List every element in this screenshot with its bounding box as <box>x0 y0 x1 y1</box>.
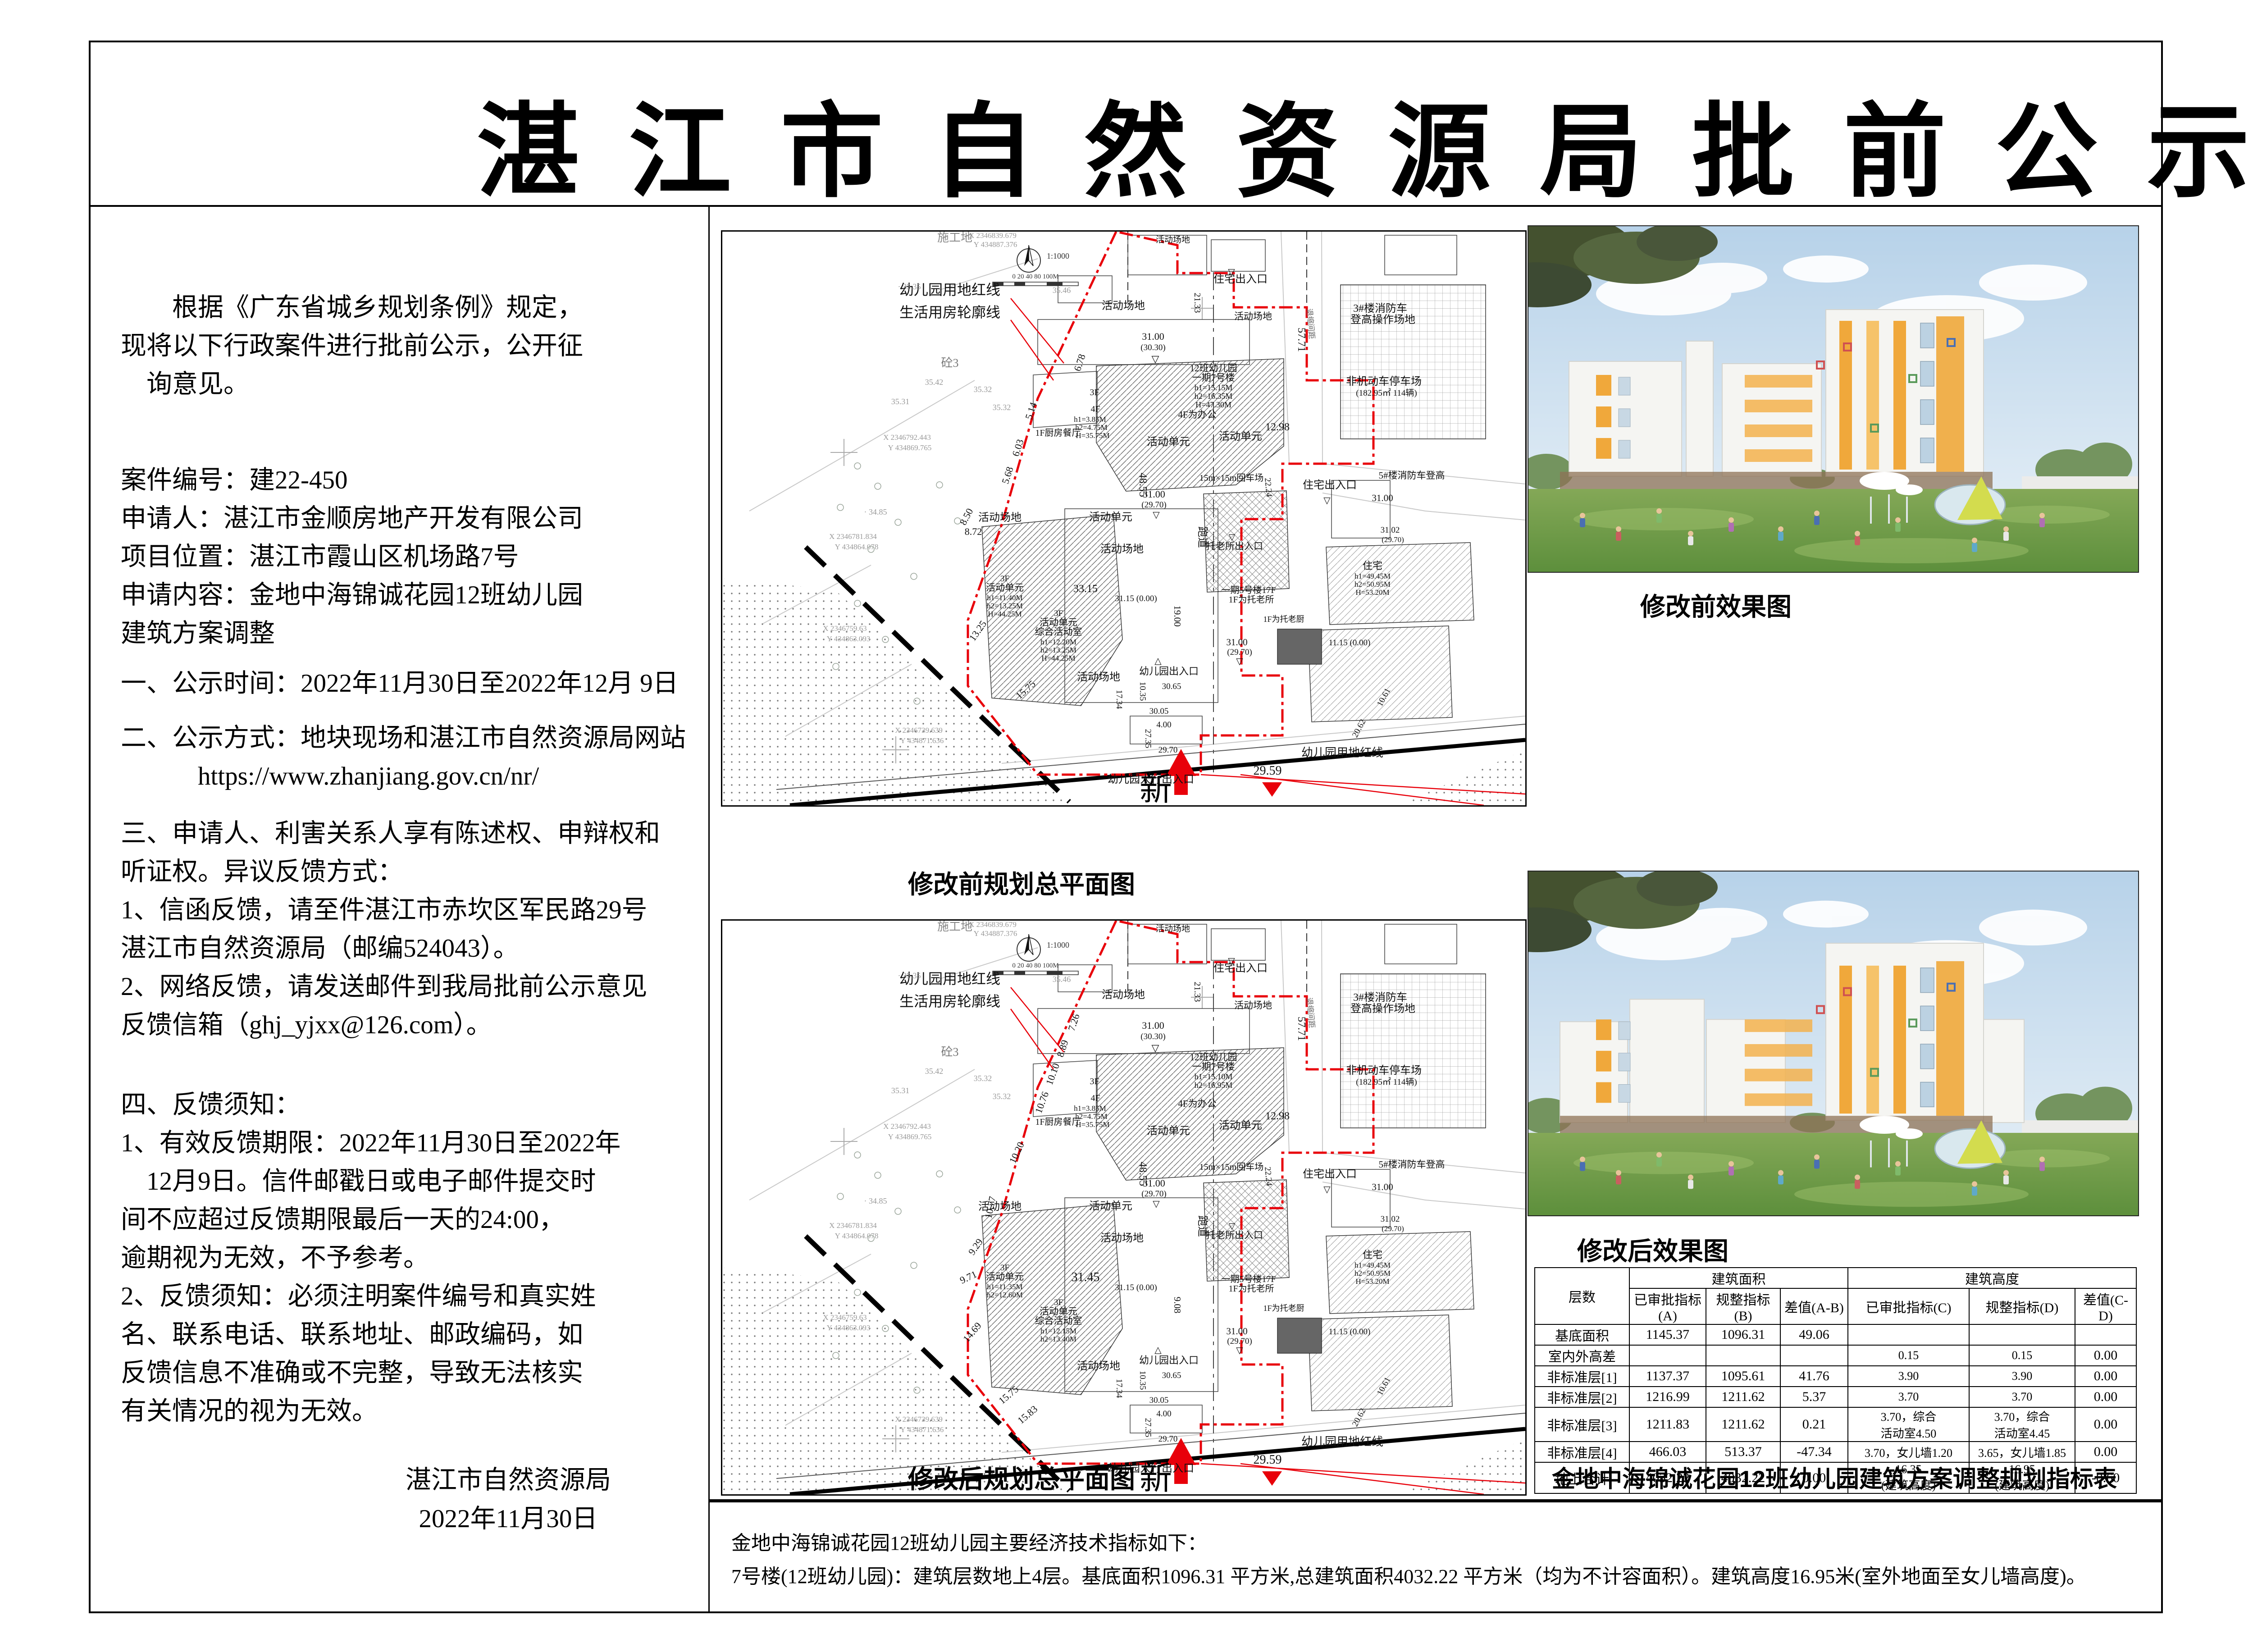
plan-label: 4.00 <box>1156 720 1171 730</box>
plan-label: 新 <box>1140 771 1172 805</box>
plan-label: 35.32 <box>974 1074 992 1083</box>
plan-label: 1F为托老所 <box>1228 594 1274 605</box>
table-corner-header: 层数 <box>1535 1268 1629 1324</box>
left-text-line: 逾期视为无效，不予参考。 <box>121 1239 707 1277</box>
table-subheader: 差值(C-D) <box>2075 1288 2136 1324</box>
plan-label: 综合活动室 <box>1035 1315 1082 1326</box>
table-cell: 0.00 <box>2075 1366 2136 1387</box>
plan-label: ▽ <box>1153 1199 1160 1209</box>
table-cell: 地上合计 <box>1535 1462 1629 1493</box>
plan-label: 27.35 <box>1143 729 1153 748</box>
plan-label: 1:1000 <box>1047 940 1069 949</box>
plan-label: 住宅 <box>1363 1249 1382 1260</box>
plan-label: h2=13.25M <box>987 602 1023 610</box>
plan-label: 4F为办公 <box>1178 409 1216 420</box>
table-cell: 1211.62 <box>1706 1407 1780 1442</box>
plan-label: 幼儿园出入口 <box>1139 666 1199 677</box>
plan-label: 5#楼消防车登高 <box>1379 1159 1445 1170</box>
plan-label: 11.15 (0.00) <box>1329 638 1371 648</box>
plan-label: 35.46 <box>1053 975 1071 984</box>
plan-label: (29.70) <box>1382 535 1404 544</box>
plan-label: X 2346839.679 <box>969 232 1017 240</box>
plan-label: 一期7号楼 <box>1192 1061 1235 1072</box>
signature-date: 2022年11月30日 <box>387 1500 630 1538</box>
paragraph: 根据《广东省城乡规划条例》规定，现将以下行政案件进行批前公示，公开征 询意见。 <box>121 288 707 403</box>
plan-label: 30.05 <box>1149 1396 1169 1405</box>
plan-label: 3#楼消防车 <box>1353 991 1407 1004</box>
caption-plan-before: 修改前规划总平面图 <box>908 864 1135 901</box>
plan-label: H=35.75M <box>1076 1120 1109 1129</box>
plan-label: 31.00 <box>1372 493 1393 503</box>
plan-label: (182.95㎡ 114辆) <box>1356 1077 1417 1087</box>
plan-label: 活动场地 <box>1102 989 1145 1001</box>
plan-label: 一期5号楼17F <box>1221 585 1276 595</box>
table-group-area: 建筑面积 <box>1629 1268 1848 1288</box>
plan-label: 4.00 <box>1156 1409 1171 1419</box>
plan-label: 29.59 <box>1254 764 1282 778</box>
plan-label: 31.00 <box>1143 488 1165 500</box>
indicator-table: 层数 建筑面积 建筑高度 已审批指标(A) 规整指标(B) 差值(A-B) 已审… <box>1534 1267 2137 1494</box>
plan-label: h2=13.40M <box>1040 1335 1076 1343</box>
plan-label: Y 434887.376 <box>974 240 1017 249</box>
paragraph: 案件编号：建22-450申请人：湛江市金顺房地产开发有限公司项目位置：湛江市霞山… <box>121 461 707 653</box>
table-subheader: 差值(A-B) <box>1780 1288 1848 1324</box>
table-row: 室内外高差0.150.150.00 <box>1535 1345 2136 1366</box>
plan-label: 27.35 <box>1143 1418 1153 1438</box>
plan-label: 登高操作场地 <box>1350 1003 1415 1015</box>
plan-label: 30.05 <box>1149 707 1169 716</box>
render-after-scene <box>1528 872 2138 1215</box>
building-base <box>1560 472 1993 490</box>
plan-label: (29.70) <box>1227 648 1252 657</box>
plan-label: ▽ <box>1152 1042 1159 1054</box>
left-text-line: 申请人：湛江市金顺房地产开发有限公司 <box>121 499 707 538</box>
paragraph: 二、公示方式：地块现场和湛江市自然资源局网站 https://www.zhanj… <box>121 719 707 795</box>
plan-label: 8.72 <box>965 526 982 537</box>
render-before-image <box>1528 225 2139 573</box>
plan-label: h2=50.95M <box>1355 580 1391 589</box>
plan-label: 幼儿园用地红线 <box>1301 1435 1383 1448</box>
plan-label: H=53.20M <box>1355 1277 1389 1286</box>
table-row: 非标准层[3]1211.831211.620.213.70，综合 活动室4.50… <box>1535 1407 2136 1442</box>
plan-label: 1F厨房餐厅 <box>1035 428 1081 438</box>
table-cell <box>1629 1345 1706 1366</box>
plan-label: 综合活动室 <box>1035 626 1082 637</box>
plan-label: h2=16.35M <box>1195 392 1233 401</box>
table-row: 地上合计4032.224032.220.0016.35 (建筑高度)16.95 … <box>1535 1462 2136 1493</box>
plan-label: 17.34 <box>1114 1379 1124 1398</box>
table-cell: 0.00 <box>2075 1345 2136 1366</box>
plan-label: X 2346792.443 <box>883 1122 931 1131</box>
table-cell: 41.76 <box>1780 1366 1848 1387</box>
plan-label: X 2346781.834 <box>829 532 877 541</box>
plan-label: 施工地 <box>937 232 972 244</box>
table-row: 基底面积1145.371096.3149.06 <box>1535 1324 2136 1345</box>
table-cell: 3.70，综合 活动室4.50 <box>1848 1407 1969 1442</box>
plan-label: 31.00 <box>1142 1020 1164 1031</box>
plan-label: 托老所出入口 <box>1206 1230 1263 1241</box>
table-cell: 3.90 <box>1848 1366 1969 1387</box>
plan-label: 31.00 <box>1142 331 1164 342</box>
plan-label: Y 434863.093 <box>827 634 871 643</box>
plan-label: X 2346759.63 <box>823 1313 867 1322</box>
signature-block: 湛江市自然资源局 2022年11月30日 <box>387 1461 630 1538</box>
site-plan-after: 施工地X 2346839.679Y 434887.3761:10000 20 4… <box>722 921 1525 1494</box>
plan-label: h1=3.85M <box>1074 1104 1106 1113</box>
plan-label: 活动单元 <box>1147 1125 1190 1137</box>
table-cell: 3.70，女儿墙1.20 <box>1848 1442 1969 1462</box>
table-cell: 0.00 <box>2075 1387 2136 1407</box>
table-cell <box>1780 1345 1848 1366</box>
building-base <box>1560 1116 1993 1134</box>
plan-label: Y 434864.078 <box>835 1232 879 1240</box>
plan-label: 3F <box>1090 1077 1099 1086</box>
plan-label: 非机动车停车场 <box>1346 375 1422 388</box>
plan-label: 4F <box>1090 404 1100 414</box>
caption-render-before: 修改前效果图 <box>1640 587 1792 623</box>
left-text-line: 有关情况的视为无效。 <box>121 1392 707 1430</box>
left-text-line: 反馈信箱（ghj_yjxx@126.com）。 <box>121 1006 707 1044</box>
render-before-scene <box>1528 226 2138 572</box>
table-group-height: 建筑高度 <box>1848 1268 2136 1288</box>
site-plan-before: 施工地X 2346839.679Y 434887.3761:10000 20 4… <box>722 232 1525 805</box>
plan-label: 35.32 <box>993 1092 1011 1101</box>
table-cell: 1211.83 <box>1629 1407 1706 1442</box>
plan-label: ▽ <box>1152 353 1159 365</box>
plan-label: 35.46 <box>1053 286 1071 295</box>
plan-label: 31.02 <box>1381 1214 1400 1224</box>
plan-label: 非机动车停车场 <box>1346 1064 1422 1077</box>
plan-label: 0 20 40 80 100M <box>1012 273 1058 280</box>
plan-label: 活动单元 <box>1219 1119 1262 1132</box>
left-text-line: 二、公示方式：地块现场和湛江市自然资源局网站 <box>121 719 707 757</box>
table-cell: 4032.22 <box>1629 1462 1706 1493</box>
plan-label: (30.30) <box>1140 1032 1165 1041</box>
table-cell: 513.37 <box>1706 1442 1780 1462</box>
plan-label: 1F为托老厨 <box>1263 615 1304 624</box>
table-cell: 0.15 <box>1969 1345 2075 1366</box>
plan-label: · 35.35 <box>898 282 921 291</box>
plan-label: X 2346759.63 <box>823 624 867 633</box>
plan-label: X 2346839.679 <box>969 921 1017 929</box>
paragraph: 一、公示时间：2022年11月30日至2022年12月 9日 <box>121 664 707 703</box>
plan-label: H=47.30M <box>1195 400 1231 409</box>
plan-label: 活动单元 <box>1147 436 1190 448</box>
plan-label: 1F为托老所 <box>1228 1283 1274 1294</box>
plan-label: 31.00 <box>1226 637 1247 648</box>
table-cell: 16.95 (建筑高度) <box>1969 1462 2075 1493</box>
plan-label: 4F <box>1090 1093 1100 1103</box>
plan-label: 29.59 <box>1254 1453 1282 1467</box>
left-text-line: 反馈信息不准确或不完整，导致无法核实 <box>121 1354 707 1392</box>
plan-label: Y 434863.093 <box>827 1323 871 1332</box>
plan-label: 住宅 <box>1363 560 1382 571</box>
plan-label: h1=15.10M <box>1195 1072 1233 1081</box>
plan-label: 住宅出入口 <box>1303 1168 1357 1180</box>
plan-label: 5#楼消防车登高 <box>1379 470 1445 481</box>
table-subheader: 规整指标(D) <box>1969 1288 2075 1324</box>
table-cell <box>1848 1324 1969 1345</box>
plan-label: h2=13.25M <box>1040 646 1076 654</box>
caption-plan-after: 修改后规划总平面图 <box>908 1459 1135 1496</box>
plan-label: 活动场地 <box>1100 1232 1144 1244</box>
plan-label: X 2346739.639 <box>895 1415 943 1424</box>
left-text-line: 询意见。 <box>121 365 707 403</box>
table-cell <box>1706 1345 1780 1366</box>
plan-label: h2=4.75M <box>1075 423 1107 432</box>
plan-label: h2=4.75M <box>1075 1112 1107 1121</box>
plan-label: ▽ <box>1229 533 1236 542</box>
table-cell: 非标准层[2] <box>1535 1387 1629 1407</box>
table-cell: 基底面积 <box>1535 1324 1629 1345</box>
plan-label: h1=49.45M <box>1355 572 1391 580</box>
plan-label: 幼儿园出入口 <box>1139 1355 1199 1366</box>
table-row: 非标准层[1]1137.371095.6141.763.903.900.00 <box>1535 1366 2136 1387</box>
plan-label: 砼3 <box>941 1045 958 1059</box>
left-text-line: 2、网络反馈，请发送邮件到我局批前公示意见 <box>121 967 707 1006</box>
page-title: 湛 江 市 自 然 资 源 局 批 前 公 示 <box>477 68 2253 217</box>
bottom-note-line2: 7号楼(12班幼儿园)：建筑层数地上4层。基底面积1096.31 平方米,总建筑… <box>731 1560 2086 1589</box>
plan-label: 生活用房轮廓线 <box>899 993 1000 1009</box>
table-cell <box>2075 1324 2136 1345</box>
left-text-line: 1、信函反馈，请至件湛江市赤坎区军民路29号 <box>121 891 707 929</box>
plan-label: 1F厨房餐厅 <box>1035 1117 1081 1127</box>
plan-label: X 2346781.834 <box>829 1221 877 1230</box>
plan-label: H=44.25M <box>1041 654 1075 662</box>
plan-label: · 34.85 <box>864 1196 887 1205</box>
plan-label: 一期7号楼 <box>1192 372 1235 383</box>
table-row: 非标准层[2]1216.991211.625.373.703.700.00 <box>1535 1387 2136 1407</box>
plan-label: H=35.75M <box>1076 431 1109 440</box>
plan-label: H=44.25M <box>988 610 1022 618</box>
plan-label: ▽ <box>1236 1346 1243 1355</box>
plan-label: 活动场地 <box>1077 1360 1120 1372</box>
plan-label: 35.32 <box>993 403 1011 412</box>
plan-label: 新 <box>1140 1460 1172 1494</box>
plan-label: △ <box>1154 1345 1162 1355</box>
table-cell: 1095.61 <box>1706 1366 1780 1387</box>
left-text-line: 名、联系电话、联系地址、邮政编码，如 <box>121 1315 707 1354</box>
left-text-line: 12月9日。信件邮戳日或电子邮件提交时 <box>121 1162 707 1200</box>
plan-label: 砼3 <box>941 356 958 370</box>
notice-body-text: 根据《广东省城乡规划条例》规定，现将以下行政案件进行批前公示，公开征 询意见。案… <box>121 288 707 1430</box>
plan-label: 生活用房轮廓线 <box>899 304 1000 320</box>
plan-label: Y 434869.765 <box>888 443 932 452</box>
left-text-line: 申请内容：金地中海锦诚花园12班幼儿园 <box>121 576 707 614</box>
plan-label: 住宅出入口 <box>1303 479 1357 491</box>
title-divider <box>89 205 2163 207</box>
table-cell <box>1969 1324 2075 1345</box>
plan-label: 1F为托老厨 <box>1263 1304 1304 1313</box>
table-row: 非标准层[4]466.03513.37-47.343.70，女儿墙1.203.6… <box>1535 1442 2136 1462</box>
bottom-band-divider <box>708 1499 2163 1502</box>
plan-label: Y 434871.636 <box>900 1425 944 1434</box>
plan-label: 10.35 <box>1138 1371 1147 1390</box>
plan-label: ▽ <box>1153 510 1160 520</box>
plan-label: ▽ <box>1323 496 1331 506</box>
plan-label: (29.70) <box>1382 1224 1404 1233</box>
table-cell: 非标准层[3] <box>1535 1407 1629 1442</box>
plan-label: 57.71 <box>1295 1017 1307 1041</box>
plan-label: 住宅出入口 <box>1213 962 1268 974</box>
plan-before-drawing: 施工地X 2346839.679Y 434887.3761:10000 20 4… <box>721 230 1527 807</box>
plan-label: 17.34 <box>1114 690 1124 709</box>
plan-label: 35.42 <box>925 378 944 387</box>
table-cell: 1137.37 <box>1629 1366 1706 1387</box>
plan-label: 一期5号楼17F <box>1221 1274 1276 1284</box>
plan-label: Y 434871.636 <box>900 736 944 745</box>
plan-label: 10.35 <box>1138 682 1147 701</box>
left-text-line: 建筑方案调整 <box>121 614 707 653</box>
plan-label: 31.00 <box>1372 1182 1393 1192</box>
plan-label: 31.00 <box>1226 1326 1247 1337</box>
plan-label: 35.32 <box>974 385 992 394</box>
plan-label: (30.30) <box>1140 343 1165 352</box>
table-cell: 1096.31 <box>1706 1324 1780 1345</box>
plan-label: 30.65 <box>1162 1371 1181 1380</box>
plan-label: Y 434887.376 <box>974 929 1017 938</box>
table-cell: 0.00 <box>2075 1442 2136 1462</box>
table-cell: 室内外高差 <box>1535 1345 1629 1366</box>
plan-label: h1=12.20M <box>1040 638 1076 646</box>
plan-label: 33.15 <box>1073 583 1098 595</box>
plan-label: 活动场地 <box>1077 671 1120 683</box>
table-cell: 0.00 <box>1780 1462 1848 1493</box>
table-cell: 1216.99 <box>1629 1387 1706 1407</box>
plan-label: 29.70 <box>1158 1434 1178 1444</box>
plan-label: 3#楼消防车 <box>1353 302 1407 315</box>
column-divider <box>708 205 710 1611</box>
plan-label: 31.15 (0.00) <box>1115 594 1157 603</box>
plan-label: 3F <box>1090 388 1099 397</box>
left-text-line: 根据《广东省城乡规划条例》规定， <box>121 288 707 327</box>
plan-label: 15m×15m回车场 <box>1199 473 1263 483</box>
plan-label: 29.70 <box>1158 745 1178 755</box>
table-cell: -0.60 <box>2075 1462 2136 1493</box>
plan-label: 施工地 <box>937 921 972 933</box>
plan-label: 9.08 <box>1172 1297 1183 1314</box>
plan-label: h1=49.45M <box>1355 1261 1391 1269</box>
plan-label: ▽ <box>1228 956 1235 966</box>
table-subheader: 已审批指标(C) <box>1848 1288 1969 1324</box>
plan-label: X 2346739.639 <box>895 726 943 735</box>
plan-label: h1=11.40M <box>987 593 1022 602</box>
caption-render-after: 修改后效果图 <box>1577 1231 1729 1268</box>
plan-label: 活动单元 <box>1219 430 1262 443</box>
table-cell: 0.21 <box>1780 1407 1848 1442</box>
left-text-line: 间不应超过反馈期限最后一天的24:00， <box>121 1200 707 1239</box>
plan-label: 活动场地 <box>978 1200 1022 1213</box>
notice-page: 湛 江 市 自 然 资 源 局 批 前 公 示 根据《广东省城乡规划条例》规定，… <box>0 0 2253 1652</box>
plan-label: h1=12.15M <box>1040 1327 1076 1335</box>
plan-label: 21.33 <box>1192 982 1202 1002</box>
plan-label: 活动场地 <box>1156 235 1190 245</box>
plan-label: 12.98 <box>1265 421 1290 433</box>
plan-label: 活动单元 <box>986 1271 1024 1282</box>
paragraph: 四、反馈须知：1、有效反馈期限：2022年11月30日至2022年 12月9日。… <box>121 1086 707 1430</box>
plan-label: H=53.20M <box>1355 588 1389 597</box>
plan-label: ▽ <box>1229 1222 1236 1231</box>
plan-label: h1=11.35M <box>987 1282 1022 1291</box>
left-text-line: 项目位置：湛江市霞山区机场路7号 <box>121 538 707 576</box>
plan-label: 活动单元 <box>1089 1200 1132 1212</box>
plan-label: (29.70) <box>1141 500 1166 510</box>
plan-label: 活动场地 <box>1102 300 1145 312</box>
plan-label: h2=12.60M <box>987 1291 1023 1299</box>
left-text-line: 案件编号：建22-450 <box>121 461 707 499</box>
plan-label: 31.02 <box>1381 525 1400 535</box>
plan-label: 35.31 <box>891 397 910 406</box>
plan-label: 幼儿园用地红线 <box>1301 746 1383 759</box>
plan-label: 21.33 <box>1192 293 1202 313</box>
plan-label: h2=16.95M <box>1195 1081 1233 1090</box>
left-text-line: 湛江市自然资源局（邮编524043）。 <box>121 929 707 967</box>
table-cell: 4032.22 <box>1706 1462 1780 1493</box>
left-text-line: 现将以下行政案件进行批前公示，公开征 <box>121 327 707 365</box>
plan-label: 22.24 <box>1263 1166 1274 1187</box>
plan-label: 35.31 <box>891 1086 910 1095</box>
plan-label: 活动单元 <box>1089 511 1132 523</box>
table-header-row: 层数 建筑面积 建筑高度 <box>1535 1268 2136 1288</box>
plan-label: 活动场地 <box>1156 924 1190 934</box>
plan-label: 1:1000 <box>1047 251 1069 260</box>
bottom-note-line1: 金地中海锦诚花园12班幼儿园主要经济技术指标如下： <box>731 1527 1207 1556</box>
plan-label: 活动场地 <box>1234 311 1272 322</box>
plan-label: ▽ <box>1228 267 1235 277</box>
plan-label: h1=15.15M <box>1195 383 1233 392</box>
left-text-line: 1、有效反馈期限：2022年11月30日至2022年 <box>121 1124 707 1162</box>
table-cell: 3.70 <box>1848 1387 1969 1407</box>
table-cell: 1145.37 <box>1629 1324 1706 1345</box>
left-text-line: 三、申请人、利害关系人享有陈述权、申辩权和 <box>121 814 707 853</box>
plan-label: (29.70) <box>1141 1189 1166 1199</box>
plan-label: 活动场地 <box>1100 543 1144 555</box>
table-cell: 0.00 <box>2075 1407 2136 1442</box>
signature-agency: 湛江市自然资源局 <box>387 1461 630 1500</box>
plan-label: 托老所出入口 <box>1206 541 1263 552</box>
table-subheader: 规整指标(B) <box>1706 1288 1780 1324</box>
left-text-line: 2、反馈须知：必须注明案件编号和真实姓 <box>121 1277 707 1315</box>
table-cell: 3.65，女儿墙1.85 <box>1969 1442 2075 1462</box>
plan-label: 活动单元 <box>986 582 1024 593</box>
plan-label: · 35.35 <box>898 971 921 980</box>
table-cell: 3.70，综合 活动室4.45 <box>1969 1407 2075 1442</box>
plan-label: 30.65 <box>1162 682 1181 691</box>
table-cell: 非标准层[4] <box>1535 1442 1629 1462</box>
plan-label: (182.95㎡ 114辆) <box>1356 388 1417 398</box>
plan-label: 活动场地 <box>1234 1000 1272 1011</box>
plan-label: 15m×15m回车场 <box>1199 1162 1263 1172</box>
table-cell: 3.90 <box>1969 1366 2075 1387</box>
plan-label: 31.00 <box>1143 1177 1165 1189</box>
plan-label: ▽ <box>1236 657 1243 666</box>
plan-label: 4F为办公 <box>1178 1098 1216 1109</box>
table-cell: 3.70 <box>1969 1387 2075 1407</box>
plan-label: 0 20 40 80 100M <box>1012 962 1058 969</box>
table-cell: 1211.62 <box>1706 1387 1780 1407</box>
left-text-line: https://www.zhanjiang.gov.cn/nr/ <box>121 757 707 795</box>
render-after-image <box>1528 871 2139 1216</box>
plan-label: 登高操作场地 <box>1350 314 1415 326</box>
plan-label: 57.71 <box>1295 328 1307 352</box>
plan-label: 11.15 (0.00) <box>1329 1327 1371 1337</box>
plan-label: 12.98 <box>1265 1110 1290 1122</box>
table-cell: 非标准层[1] <box>1535 1366 1629 1387</box>
plan-label: · 34.85 <box>864 507 887 516</box>
table-cell: 49.06 <box>1780 1324 1848 1345</box>
plan-label: X 2346792.443 <box>883 433 931 442</box>
table-cell: 5.37 <box>1780 1387 1848 1407</box>
